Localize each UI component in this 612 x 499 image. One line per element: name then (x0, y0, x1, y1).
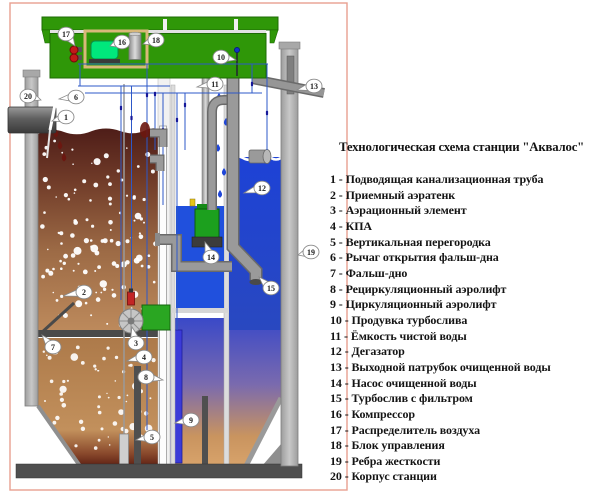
svg-text:6: 6 (74, 93, 78, 102)
legend-item: 14 - Насос очищенной воды (330, 376, 612, 392)
svg-text:19: 19 (307, 248, 315, 257)
svg-text:1: 1 (64, 113, 68, 122)
svg-text:17: 17 (62, 30, 70, 39)
settling-baffle (202, 396, 208, 466)
legend-item: 7 - Фальш-дно (330, 266, 612, 282)
svg-text:12: 12 (258, 184, 266, 193)
callout-11: 11 (197, 77, 223, 91)
svg-text:3: 3 (134, 339, 138, 348)
svg-text:20: 20 (24, 92, 32, 101)
svg-text:9: 9 (189, 416, 193, 425)
clean-water-pump (195, 209, 219, 239)
legend-item: 17 - Распределитель воздуха (330, 423, 612, 439)
legend-item: 13 - Выходной патрубок очищенной воды (330, 360, 612, 376)
kpa-paddle (120, 434, 129, 464)
compressor-base (89, 59, 120, 63)
lid-rib-slot (234, 19, 238, 30)
lid (42, 17, 278, 78)
legend: Технологическая схема станции "Аквалос" … (330, 140, 612, 485)
aeration-valve (128, 292, 135, 305)
svg-text:18: 18 (152, 36, 160, 45)
callout-19: 19 (298, 245, 319, 259)
legend-item: 9 - Циркуляционный аэролифт (330, 297, 612, 313)
legend-item: 2 - Приемный аэратенк (330, 188, 612, 204)
lid-rib-slot (163, 19, 167, 30)
blowoff-valve (235, 48, 240, 53)
page: 1 2 3 4 5 6 7 8 9 10 11 12 13 14 15 16 1… (0, 0, 612, 499)
pump-cable-gland (190, 199, 195, 206)
legend-item: 4 - КПА (330, 219, 612, 235)
clean-tank-left-wall (171, 85, 175, 466)
legend-item: 20 - Корпус станции (330, 469, 612, 485)
legend-item: 6 - Рычаг открытия фальш-дна (330, 250, 612, 266)
legend-item: 18 - Блок управления (330, 438, 612, 454)
svg-text:5: 5 (150, 433, 154, 442)
legend-item: 1 - Подводящая канализационная труба (330, 172, 612, 188)
control-unit (129, 34, 141, 60)
legend-item: 15 - Турбослив с фильтром (330, 391, 612, 407)
legend-item: 16 - Компрессор (330, 407, 612, 423)
legend-items: 1 - Подводящая канализационная труба 2 -… (330, 172, 612, 485)
svg-text:16: 16 (118, 38, 126, 47)
legend-item: 5 - Вертикальная перегородка (330, 235, 612, 251)
pipe-flange (155, 233, 160, 246)
legend-item: 19 - Ребра жесткости (330, 454, 612, 470)
hull-right-wall (281, 46, 298, 466)
degasser-inlet-flange (263, 150, 271, 164)
legend-item: 11 - Ёмкость чистой воды (330, 329, 612, 345)
hull-right-cap (279, 42, 300, 49)
svg-text:15: 15 (267, 284, 275, 293)
tank-bottom-plate (16, 464, 302, 478)
callout-6: 6 (59, 90, 84, 104)
svg-text:2: 2 (82, 288, 86, 297)
svg-text:14: 14 (207, 253, 215, 262)
legend-item: 12 - Дегазатор (330, 344, 612, 360)
svg-text:10: 10 (217, 53, 225, 62)
svg-text:8: 8 (144, 373, 148, 382)
svg-text:11: 11 (211, 80, 219, 89)
svg-text:4: 4 (142, 353, 146, 362)
station-diagram: 1 2 3 4 5 6 7 8 9 10 11 12 13 14 15 16 1… (0, 0, 355, 499)
hull-left-cap (23, 70, 40, 77)
diagram-title: Технологическая схема станции "Аквалос" (339, 140, 612, 155)
svg-text:7: 7 (51, 343, 55, 352)
legend-item: 10 - Продувка турбослива (330, 313, 612, 329)
legend-item: 3 - Аэрационный элемент (330, 203, 612, 219)
false-bottom (38, 330, 164, 337)
svg-text:13: 13 (310, 82, 318, 91)
clean-tank-bottom (171, 308, 229, 313)
legend-item: 8 - Рециркуляционный аэролифт (330, 282, 612, 298)
